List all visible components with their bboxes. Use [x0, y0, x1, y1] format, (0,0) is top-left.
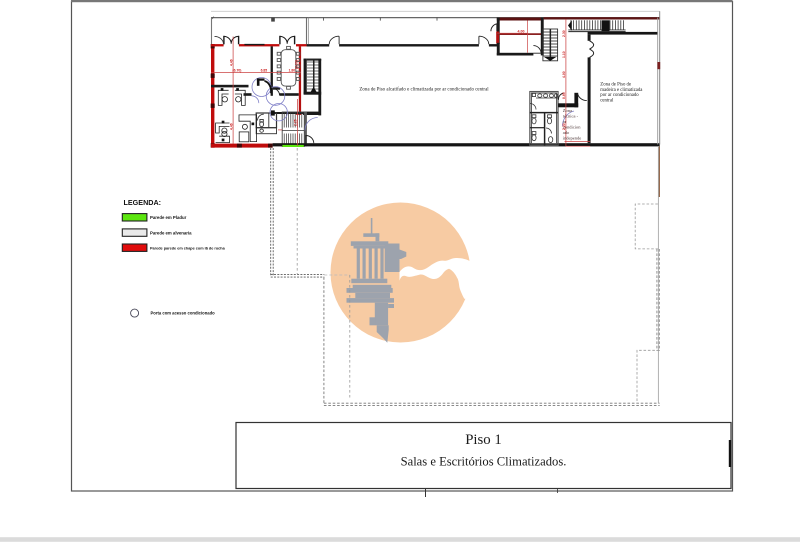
- svg-text:Zona: Zona: [563, 108, 572, 113]
- svg-text:ado: ado: [563, 130, 570, 135]
- svg-text:por ar condicionado: por ar condicionado: [600, 93, 639, 98]
- svg-text:ar: ar: [563, 119, 567, 124]
- svg-text:4.46: 4.46: [229, 123, 233, 130]
- svg-text:6.85: 6.85: [261, 69, 268, 73]
- svg-text:Piso 1: Piso 1: [465, 432, 502, 448]
- svg-text:LEGENDA:: LEGENDA:: [124, 198, 162, 207]
- svg-text:independe: independe: [563, 135, 582, 140]
- svg-text:central: central: [600, 99, 614, 104]
- svg-text:(2.90): (2.90): [295, 60, 299, 69]
- svg-text:4.00: 4.00: [562, 71, 566, 78]
- svg-text:Porta com acesso condicionado: Porta com acesso condicionado: [151, 311, 216, 316]
- svg-text:0.65: 0.65: [562, 92, 566, 99]
- svg-text:Parede parede em chape com lã: Parede parede em chape com lã de rocha: [150, 247, 226, 251]
- svg-text:madeira e climatizada: madeira e climatizada: [600, 88, 643, 93]
- svg-text:Salas e Escritórios Climatizad: Salas e Escritórios Climatizados.: [401, 455, 567, 469]
- svg-text:Zona de Piso alcatifado e clim: Zona de Piso alcatifado e climatizada po…: [359, 88, 489, 93]
- svg-text:(6.70): (6.70): [233, 69, 242, 73]
- svg-text:Parede em alvenaria: Parede em alvenaria: [150, 231, 192, 236]
- svg-text:Parede em Pladur: Parede em Pladur: [150, 215, 187, 220]
- svg-text:1.10: 1.10: [562, 51, 566, 58]
- svg-text:4.46: 4.46: [229, 59, 233, 66]
- svg-text:2.30: 2.30: [562, 30, 566, 37]
- svg-text:técnica -: técnica -: [563, 113, 579, 118]
- svg-text:4.00: 4.00: [518, 30, 525, 34]
- svg-text:2.25: 2.25: [294, 119, 298, 126]
- svg-text:Zona de Piso de: Zona de Piso de: [600, 83, 631, 88]
- svg-text:condicion: condicion: [563, 124, 581, 129]
